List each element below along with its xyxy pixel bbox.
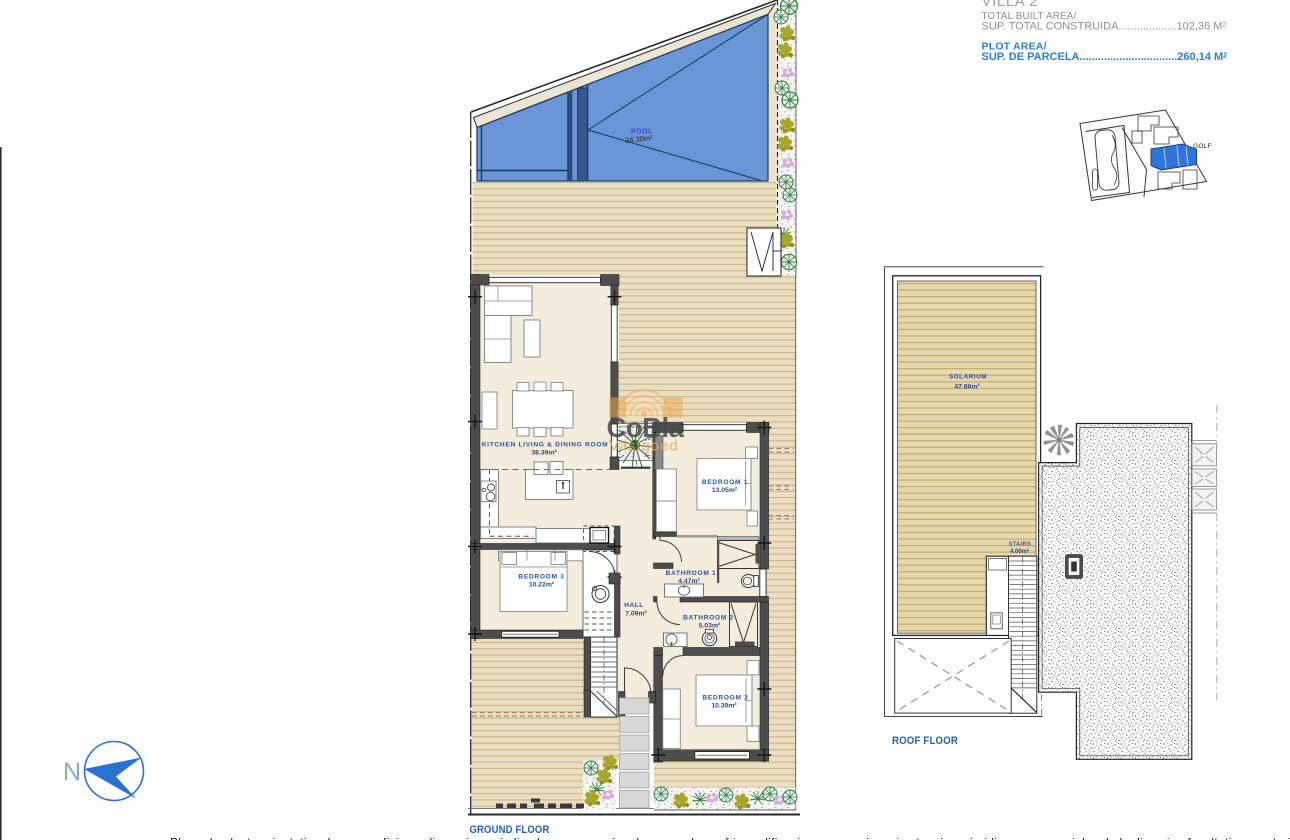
svg-text:7.09m²: 7.09m² bbox=[625, 611, 647, 618]
svg-text:47.88m²: 47.88m² bbox=[954, 384, 980, 391]
svg-text:SUP. TOTAL CONSTRUIDA.........: SUP. TOTAL CONSTRUIDA...................… bbox=[982, 21, 1227, 33]
svg-text:KITCHEN LIVING & DINING: KITCHEN LIVING & DINING ROOM bbox=[482, 442, 609, 449]
svg-text:10.30m²: 10.30m² bbox=[711, 703, 737, 710]
svg-text:4.00m²: 4.00m² bbox=[1010, 548, 1029, 555]
svg-text:10.22m²: 10.22m² bbox=[529, 582, 555, 589]
svg-text:BEDROOM 1: BEDROOM 1 bbox=[702, 479, 748, 486]
svg-text:SUP. DE PARCELA...............: SUP. DE PARCELA.........................… bbox=[982, 51, 1228, 63]
svg-text:BATHROOM 1: BATHROOM 1 bbox=[666, 570, 717, 577]
svg-text:38.39m²: 38.39m² bbox=[531, 450, 557, 457]
svg-text:HALL: HALL bbox=[624, 602, 644, 609]
svg-text:5.03m²: 5.03m² bbox=[699, 623, 721, 630]
svg-text:Plano de planta orientativo. L: Plano de planta orientativo. Las superfi… bbox=[170, 835, 1290, 840]
svg-text:STAIRS: STAIRS bbox=[1009, 542, 1032, 548]
svg-text:GOLF: GOLF bbox=[1193, 143, 1212, 150]
svg-text:N: N bbox=[63, 758, 81, 786]
svg-text:BEDROOM 2: BEDROOM 2 bbox=[702, 695, 748, 702]
svg-text:13.05m²: 13.05m² bbox=[712, 487, 738, 494]
svg-text:ROOF FLOOR: ROOF FLOOR bbox=[892, 735, 958, 747]
svg-text:Vastgoed: Vastgoed bbox=[609, 439, 679, 455]
svg-text:BATHROOM 2: BATHROOM 2 bbox=[683, 615, 734, 622]
svg-text:VILLA 2: VILLA 2 bbox=[982, 0, 1039, 10]
svg-text:GROUND FLOOR: GROUND FLOOR bbox=[470, 824, 550, 836]
svg-text:BEDROOM 3: BEDROOM 3 bbox=[518, 574, 564, 581]
svg-text:4.47m²: 4.47m² bbox=[678, 578, 700, 585]
svg-text:SOLARIUM: SOLARIUM bbox=[949, 374, 987, 381]
